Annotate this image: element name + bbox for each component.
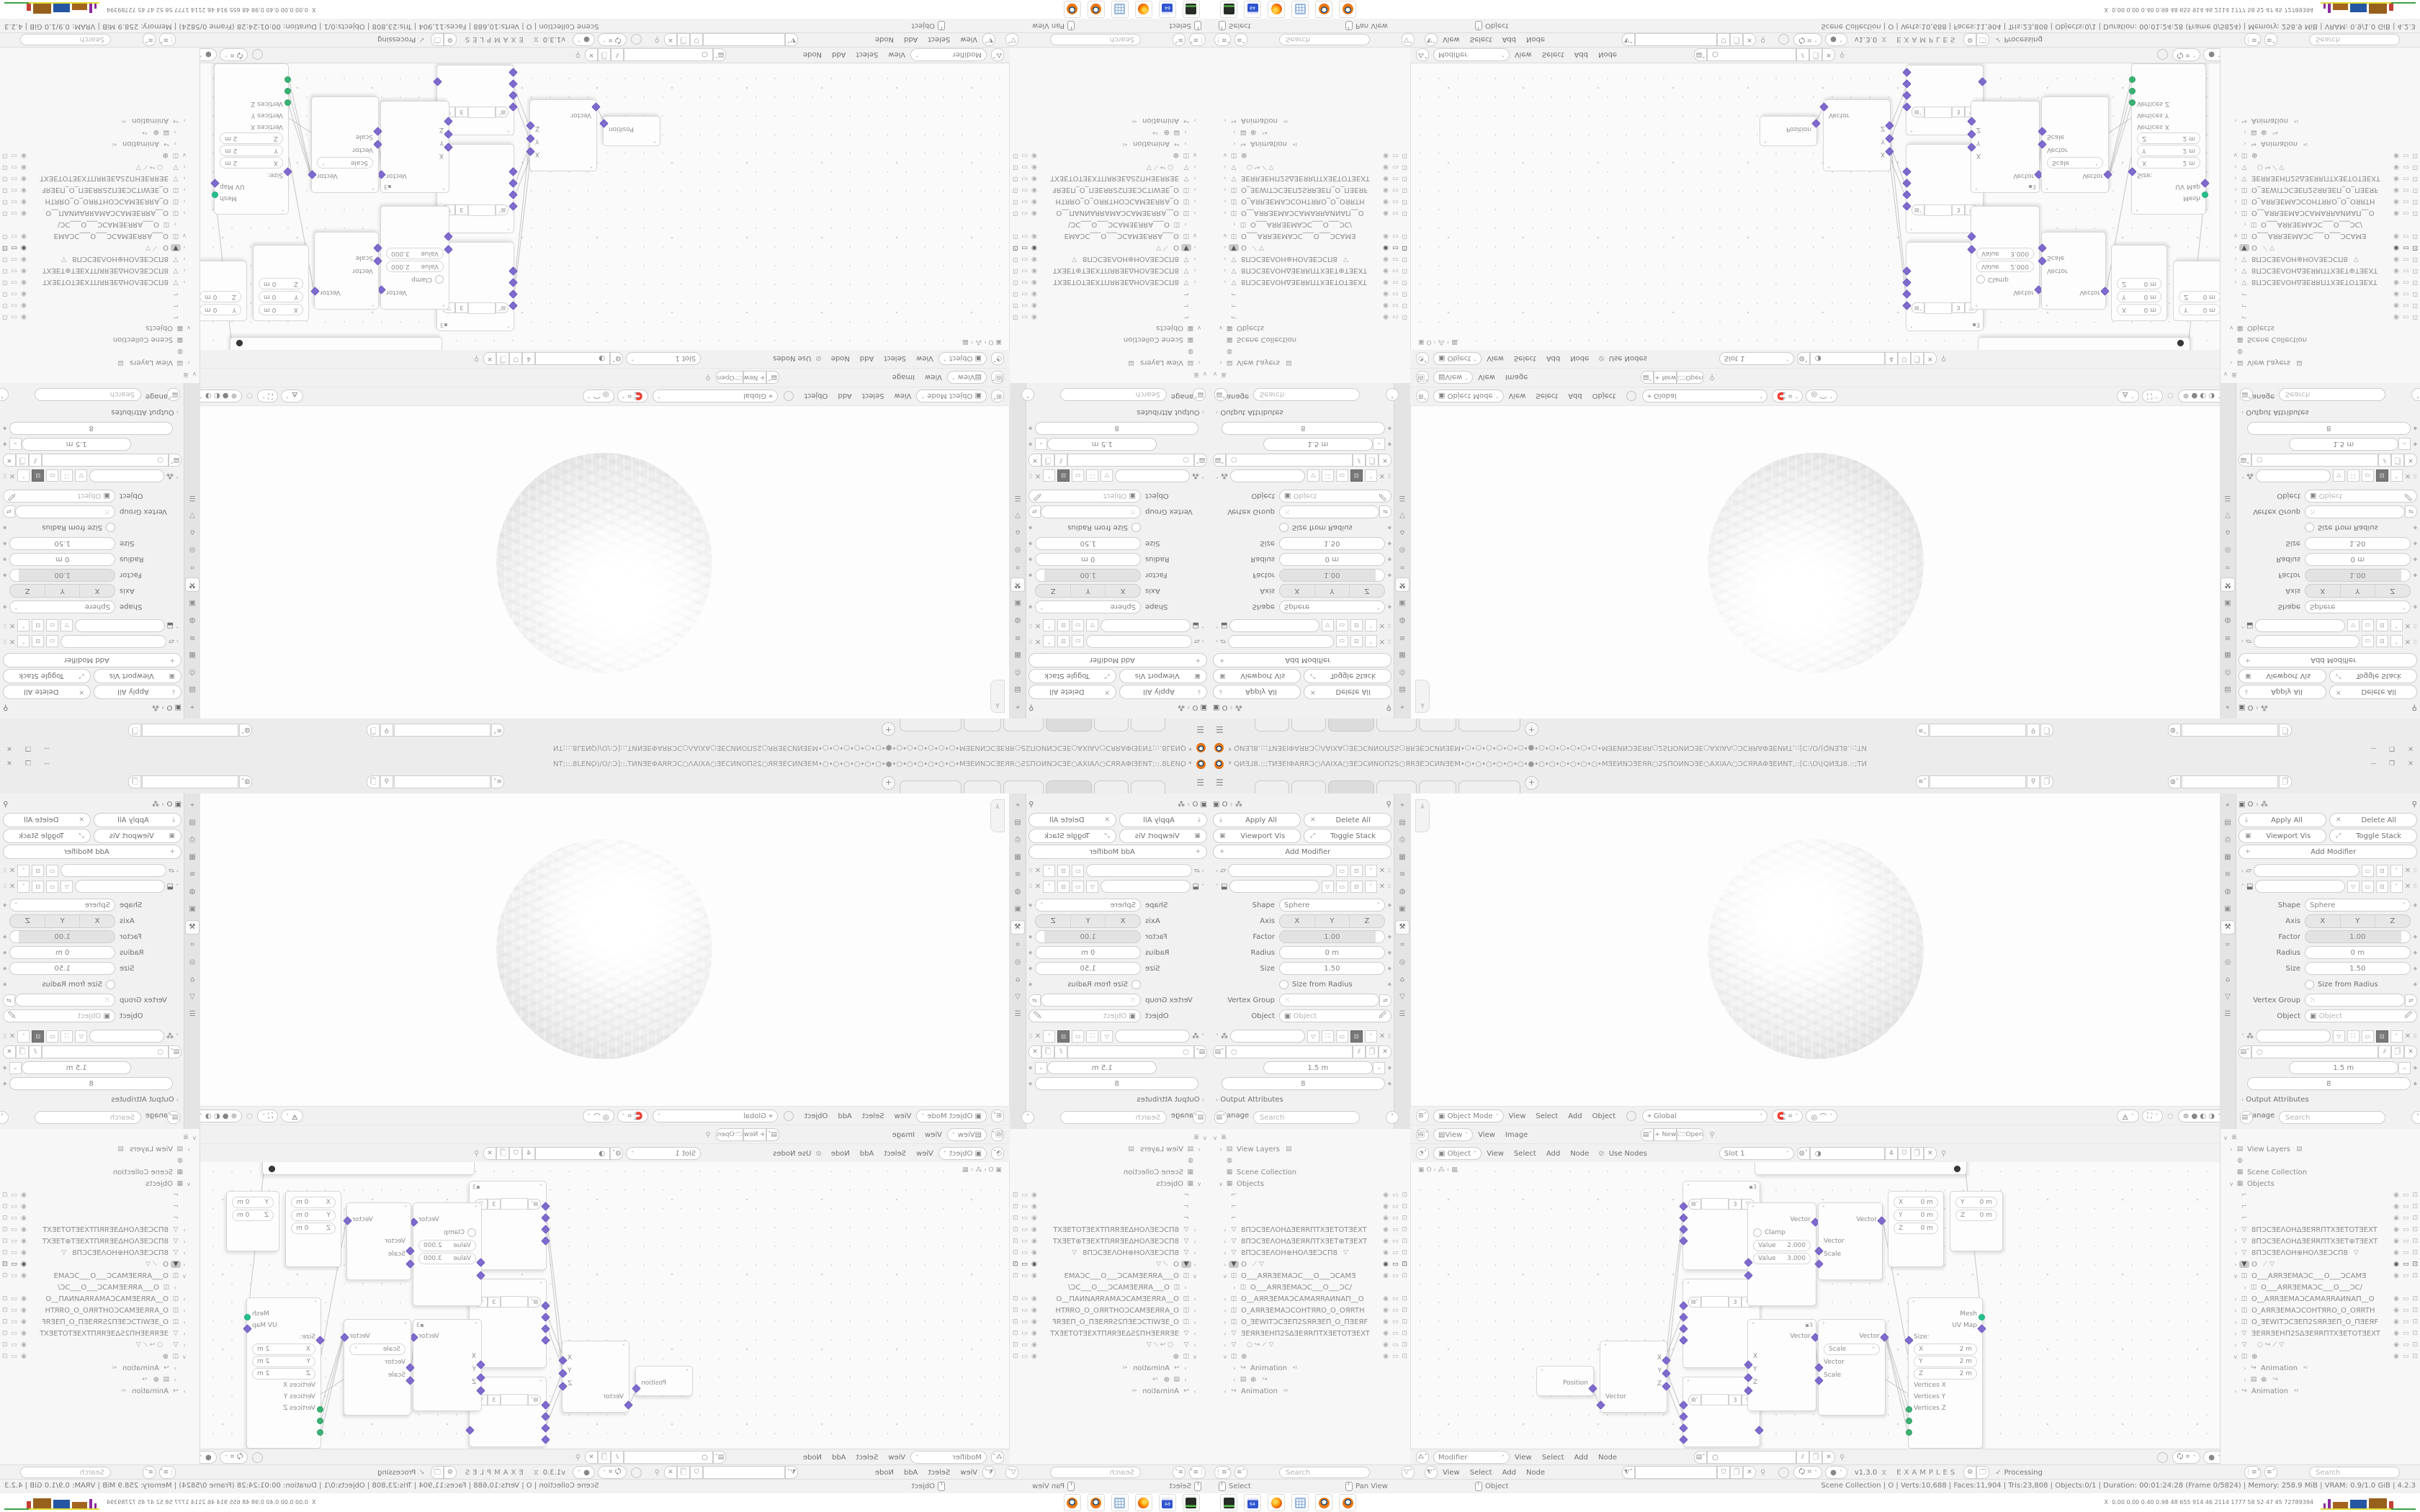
hide-eye-icon[interactable]: ◉: [1031, 1226, 1037, 1233]
outliner-row[interactable]: ⌐◉▭⊡: [1011, 1212, 1209, 1224]
count-field[interactable]: 8: [9, 1077, 173, 1090]
shield-icon[interactable]: ⛉: [690, 33, 703, 46]
properties-tab-9-icon[interactable]: ◎: [1396, 956, 1409, 969]
panel-icon[interactable]: 🗔: [1976, 33, 1989, 46]
shape-dropdown[interactable]: Sphere˅: [9, 600, 115, 613]
close-button[interactable]: ✕: [2401, 760, 2420, 768]
expand-arrow[interactable]: ›: [171, 141, 179, 148]
outliner-row[interactable]: ›◫O___AЯRƎEMAƆC___O___ƆC∕: [2222, 219, 2419, 230]
outliner-row[interactable]: ›◫O___AЯRƎEMAƆC___O___ƆC∕: [1, 219, 198, 230]
viewport-disable-icon[interactable]: ▭: [1392, 256, 1399, 263]
object-name[interactable]: O__AЯRƎEMAƆCAMAЯRAИNAП__O: [45, 1295, 169, 1303]
use-nodes-checkbox[interactable]: ⊘: [815, 355, 821, 363]
dropdown-icon[interactable]: ˅: [1043, 881, 1055, 893]
pivot-group[interactable]: ◎ ⌒˅: [583, 1110, 614, 1122]
axis-segmented-control[interactable]: XYZ: [1035, 585, 1141, 598]
hide-eye-icon[interactable]: ◉: [1383, 163, 1389, 171]
render-toggle-icon[interactable]: ⊡: [32, 881, 44, 893]
viewport-toolbar-tab[interactable]: ⅄: [1415, 799, 1430, 832]
unlink-icon[interactable]: ✕: [1743, 33, 1756, 46]
viewport-disable-icon[interactable]: ▭: [12, 186, 18, 194]
expand-arrow[interactable]: v: [1196, 1181, 1203, 1187]
remove-icon[interactable]: ✕: [9, 638, 15, 646]
render-toggle-icon[interactable]: ⊡: [32, 1030, 44, 1043]
outliner-row[interactable]: ›◫O___AЯRƎEMAƆC___O___ƆC∕: [1211, 219, 1409, 230]
snap-group[interactable]: 🧲 ⌗˅: [617, 1110, 648, 1122]
slot-dropdown[interactable]: Slot 1˅: [626, 1147, 701, 1160]
filter-icon[interactable]: ≋˅: [1234, 1466, 1247, 1479]
properties-tab-1-icon[interactable]: ▤: [1396, 816, 1409, 829]
unlink-icon[interactable]: ✕: [1028, 1045, 1041, 1058]
properties-search-input[interactable]: [1060, 1111, 1167, 1124]
properties-tab-0-icon[interactable]: ⌖: [2221, 799, 2234, 812]
outliner-search-input[interactable]: [20, 34, 111, 45]
render-disable-icon[interactable]: ⊡: [1013, 279, 1018, 286]
count-field[interactable]: 8: [1222, 422, 1385, 435]
expand-arrow[interactable]: ›: [2232, 210, 2239, 217]
edit-toggle-icon[interactable]: ▽: [1307, 1030, 1319, 1043]
object-name[interactable]: O_AЯRƎEMAƆCOHTЯRO_O_OЯRTH: [45, 1307, 169, 1315]
edit-mode-toggle-icon[interactable]: ▽: [60, 881, 73, 893]
nodetree-id-field[interactable]: ○: [42, 1045, 169, 1058]
mode-dropdown[interactable]: ▣ Object Mode˅: [1433, 1110, 1504, 1122]
viewport-toolbar-tab[interactable]: ⅄: [990, 799, 1005, 832]
menu-select[interactable]: Select: [1542, 1454, 1564, 1462]
object-name[interactable]: O__AЯRƎEMAƆCAMAЯRAИNAП__O: [1056, 210, 1179, 217]
expand-arrow[interactable]: ›: [2232, 176, 2239, 182]
viewport-disable-icon[interactable]: ▭: [2403, 313, 2409, 320]
object-name[interactable]: O_ƎEWITƆCƎEП2SЯRƎEП_O_ПƎEЯF: [2251, 1318, 2378, 1326]
new-image-button[interactable]: + New: [743, 1128, 766, 1141]
properties-tab-11-icon[interactable]: ▽: [1011, 991, 1024, 1004]
outliner-row[interactable]: ›◫O_AЯRƎEMAƆCOHTЯRO_O_OЯRTH◉▭⊡: [1211, 196, 1409, 207]
expand-arrow[interactable]: v: [1222, 1354, 1229, 1360]
expand-arrow[interactable]: ›: [2241, 222, 2249, 228]
viewport-disable-icon[interactable]: ▭: [12, 1192, 18, 1199]
monitor-toggle-icon[interactable]: ▭: [46, 620, 58, 632]
workspace-tab[interactable]: [1458, 719, 1520, 732]
apply-all-button[interactable]: ⤓Apply All: [1119, 685, 1207, 699]
hide-eye-icon[interactable]: ◉: [21, 1192, 27, 1199]
open-image-button[interactable]: 🗁 Open: [716, 1128, 743, 1141]
object-name[interactable]: View Layers: [1237, 359, 1280, 367]
outliner-row[interactable]: ›▽○ ↪ ⟋ ▽◉▭⊡: [1211, 1339, 1409, 1351]
properties-tab-2-icon[interactable]: ⎙: [186, 665, 199, 678]
object-name[interactable]: 8ПƆCƎEΛOH⊕HOΛƎEƆCП8: [2251, 256, 2348, 264]
modifier-slot-collapsed[interactable]: ›▱ ▭ ⊡ ˅ ✕ ⠿: [1210, 634, 1394, 649]
unlink-icon[interactable]: ✕: [1822, 1451, 1835, 1464]
outliner-row[interactable]: ›◫O___AЯRƎEMAƆC___O___ƆC∕: [1011, 1282, 1209, 1293]
menu-node[interactable]: Node: [1598, 1454, 1617, 1462]
object-name[interactable]: 8ПƆCƎEΛOHΔƎEЯRПTXƎET⊕TƎEXT: [1241, 267, 1367, 275]
nodetree-id-field[interactable]: [1635, 33, 1717, 46]
menu-add[interactable]: Add: [1574, 51, 1588, 59]
dropdown-icon[interactable]: ˅: [1043, 620, 1055, 632]
dropdown-icon[interactable]: ˅: [17, 636, 30, 648]
expand-arrow[interactable]: ›: [2232, 1308, 2239, 1314]
outliner-row[interactable]: ⌐◉▭⊡: [2222, 300, 2419, 311]
expand-arrow[interactable]: ›: [1222, 118, 1229, 125]
blender-icon[interactable]: [1339, 1494, 1356, 1511]
axis-segmented-control[interactable]: XYZ: [1035, 914, 1141, 928]
viewport-disable-icon[interactable]: ▭: [1392, 1318, 1399, 1326]
render-disable-icon[interactable]: ⊡: [1013, 198, 1018, 205]
window-titlebar[interactable]: * QИƎ⅃8.::;TИƎEIΦAЯRƆ○ΛAIXA○ƎEƆCИNOΠ2S○Я…: [1210, 739, 2420, 756]
viewport-disable-icon[interactable]: ▭: [1392, 186, 1399, 194]
nodes-modifier-name-field[interactable]: [89, 469, 164, 482]
menu-select[interactable]: Select: [856, 51, 878, 59]
render-disable-icon[interactable]: ⊡: [2412, 1353, 2418, 1360]
expand-arrow[interactable]: ›: [181, 1342, 188, 1349]
nodetree-type-icon[interactable]: ⧨˅: [1622, 33, 1635, 46]
outliner-row[interactable]: v◫O___AЯRƎEMAƆC___O___ƆCAMƎ◉▭⊡: [2222, 1270, 2419, 1282]
menu-node[interactable]: Node: [831, 1150, 850, 1158]
users-count[interactable]: 4: [522, 1147, 535, 1160]
map-range-node[interactable]: ˅ Vector Clamp Value2.000 Value3.000: [380, 206, 449, 310]
nodes-modifier-name-field[interactable]: [2256, 469, 2331, 482]
new-image-button[interactable]: + New: [1654, 1128, 1677, 1141]
remove-icon[interactable]: ✕: [2405, 867, 2411, 875]
options-chevron-icon[interactable]: ˅: [1386, 1111, 1399, 1124]
render-disable-icon[interactable]: ⊡: [1013, 256, 1018, 263]
render-disable-icon[interactable]: ⊡: [2, 1318, 8, 1326]
blender-icon[interactable]: [1088, 1494, 1105, 1511]
viewport-disable-icon[interactable]: ▭: [12, 1272, 18, 1279]
menu-view[interactable]: View: [1509, 392, 1526, 400]
properties-tab-11-icon[interactable]: ▽: [1011, 508, 1024, 521]
hide-eye-icon[interactable]: ◉: [1383, 1238, 1389, 1245]
monitor-toggle-icon[interactable]: ▭: [46, 1030, 58, 1043]
slot-dropdown[interactable]: Slot 1˅: [1719, 352, 1794, 365]
menu-view[interactable]: View: [916, 355, 933, 363]
properties-tab-12-icon[interactable]: ☰: [186, 1008, 199, 1021]
pin-icon[interactable]: ⚲: [1386, 801, 1391, 809]
expand-arrow[interactable]: ›: [2232, 245, 2239, 251]
outliner-row[interactable]: ›▽8ПƆCƎEΛOHΔƎEЯRПTXƎETOTƎEXT◉▭⊡: [1211, 276, 1409, 288]
menu-add[interactable]: Add: [904, 1469, 918, 1477]
users-count[interactable]: 3: [488, 1395, 501, 1405]
output-attributes-expander[interactable]: › Output Attributes: [1210, 405, 1394, 420]
object-name[interactable]: 8ПƆCƎEΛOHΔƎEЯRПTXƎETOTƎEXT: [1053, 279, 1179, 287]
viewlayer-name-field[interactable]: [2182, 724, 2278, 737]
properties-tab-9-icon[interactable]: ◎: [2221, 956, 2234, 969]
expand-arrow[interactable]: ›: [1222, 210, 1229, 217]
expand-arrow[interactable]: ›: [1231, 1365, 1238, 1372]
material-id-field[interactable]: ◑: [1810, 1147, 1885, 1160]
outliner-row[interactable]: ⌐◉▭⊡: [1211, 1189, 1409, 1201]
apply-all-button[interactable]: ⤓Apply All: [94, 685, 181, 699]
breadcrumb-object[interactable]: O: [166, 704, 172, 712]
count-field[interactable]: 8: [2247, 1077, 2411, 1090]
object-name[interactable]: ⊕: [163, 1353, 169, 1361]
hide-eye-icon[interactable]: ◉: [21, 233, 27, 240]
render-disable-icon[interactable]: ⊡: [1402, 1318, 1407, 1326]
outliner-row[interactable]: ◍: [1011, 1155, 1209, 1166]
viewport-disable-icon[interactable]: ▭: [12, 152, 18, 159]
dropdown-icon[interactable]: ˅: [1043, 636, 1055, 648]
outliner-row[interactable]: ◍: [1211, 346, 1409, 357]
render-disable-icon[interactable]: ⊡: [2412, 233, 2418, 240]
menu-view[interactable]: View: [1487, 1150, 1504, 1158]
unlink-icon[interactable]: ✕: [585, 1451, 598, 1464]
menu-image[interactable]: Image: [1505, 1131, 1528, 1139]
filter-icon[interactable]: ≋˅: [2264, 1466, 2277, 1479]
vertex-group-field[interactable]: ⁙: [2305, 994, 2405, 1007]
hide-eye-icon[interactable]: ◉: [1383, 1249, 1389, 1256]
properties-tab-6-icon[interactable]: ▣: [1396, 903, 1409, 916]
viewport-disable-icon[interactable]: ▭: [12, 279, 18, 286]
outliner-row[interactable]: ›▽8ПƆCƎEΛOH⊕HOΛƎEƆCП8▽◉▭⊡: [1011, 1247, 1209, 1259]
workspace-tab[interactable]: [964, 719, 1001, 732]
expand-arrow[interactable]: ›: [2232, 118, 2239, 125]
render-disable-icon[interactable]: ⊡: [2, 313, 8, 320]
expand-arrow[interactable]: ›: [1222, 199, 1229, 205]
pin-icon[interactable]: ⚲: [2027, 775, 2040, 788]
edit-mode-toggle-icon[interactable]: ▽: [60, 620, 73, 632]
factor-slider[interactable]: 1.00: [2305, 569, 2411, 582]
outliner-row[interactable]: ›▽○ ↪ ⟋ ▽◉▭⊡: [2222, 1339, 2419, 1351]
nodetree-id-field[interactable]: [703, 1466, 785, 1479]
expand-arrow[interactable]: v: [1191, 153, 1198, 159]
properties-tab-5-icon[interactable]: ◍: [1396, 886, 1409, 899]
firefox-icon[interactable]: [1268, 1, 1285, 18]
edit-toggle-icon[interactable]: ▽: [75, 470, 87, 482]
size-from-radius-radio[interactable]: [106, 980, 115, 989]
outliner-row[interactable]: ›▤View Layers▤: [2222, 1143, 2419, 1155]
menu-image[interactable]: Image: [892, 374, 915, 382]
outliner-row[interactable]: v▦Objects: [1011, 1178, 1209, 1189]
render-disable-icon[interactable]: ⊡: [2, 186, 8, 194]
object-name[interactable]: View Layers: [1140, 359, 1183, 367]
properties-tab-3-icon[interactable]: ▦: [2221, 851, 2234, 864]
render-disable-icon[interactable]: ⊡: [2, 1226, 8, 1233]
expand-arrow[interactable]: v: [1211, 372, 1219, 378]
workspace-tab[interactable]: [1419, 780, 1456, 793]
menu-add[interactable]: Add: [860, 355, 874, 363]
outliner-row[interactable]: ›◫O_AЯRƎEMAƆCOHTЯRO_O_OЯRTH◉▭⊡: [1211, 1305, 1409, 1316]
hide-eye-icon[interactable]: ◉: [1031, 1203, 1037, 1210]
outliner-row[interactable]: ›▤⊕↪: [1011, 127, 1209, 138]
expand-arrow[interactable]: v: [2228, 325, 2235, 332]
menu-object[interactable]: Object: [805, 1112, 828, 1120]
viewport-disable-icon[interactable]: ▭: [12, 244, 18, 251]
object-name[interactable]: ⊕: [2261, 1376, 2267, 1384]
users-count[interactable]: 3: [455, 303, 468, 314]
hide-eye-icon[interactable]: ◉: [1383, 1272, 1389, 1279]
hide-eye-icon[interactable]: ◉: [1031, 1192, 1037, 1199]
render-disable-icon[interactable]: ⊡: [1402, 1353, 1407, 1360]
modifier-name-field[interactable]: [1101, 619, 1190, 632]
render-disable-icon[interactable]: ⊡: [1402, 1192, 1407, 1199]
expand-arrow[interactable]: ›: [2232, 1342, 2239, 1349]
add-modifier-button[interactable]: +Add Modifier: [3, 653, 181, 667]
dropdown-icon[interactable]: ˅: [1365, 636, 1377, 648]
pin-icon[interactable]: ⚲: [1028, 801, 1034, 809]
render-toggle-icon[interactable]: ⊡: [1350, 881, 1363, 893]
drag-handle-icon[interactable]: ⠿: [3, 473, 7, 480]
render-disable-icon[interactable]: ⊡: [2412, 267, 2418, 274]
nodetree-icon[interactable]: ▤˅: [496, 107, 508, 118]
snap-mode-group[interactable]: 🗘 ⌗˅: [598, 33, 627, 46]
editor-type-icon[interactable]: 🖼˅: [1416, 1128, 1429, 1141]
expand-arrow[interactable]: ›: [2232, 268, 2239, 274]
viewport-disable-icon[interactable]: ▭: [2403, 152, 2409, 159]
hide-eye-icon[interactable]: ◉: [1383, 186, 1389, 194]
group-output-node-partial[interactable]: [262, 1162, 475, 1175]
fake-user-icon[interactable]: ⫽: [29, 454, 42, 467]
pin-icon[interactable]: ⚲: [1760, 1469, 1765, 1477]
monitor-toggle-icon[interactable]: ▭: [2362, 636, 2374, 648]
outliner-row[interactable]: ›◫O___AЯRƎEMAƆC___O___ƆC∕: [1, 1282, 198, 1293]
hide-eye-icon[interactable]: ◉: [1031, 1261, 1037, 1268]
hide-eye-icon[interactable]: ◉: [2393, 1192, 2399, 1199]
viewport-disable-icon[interactable]: ▭: [2403, 1330, 2409, 1337]
viewport-disable-icon[interactable]: ▭: [1022, 1307, 1028, 1314]
expand-arrow[interactable]: ›: [1217, 1146, 1224, 1153]
outliner-row[interactable]: v≣: [1011, 369, 1209, 380]
render-disable-icon[interactable]: ⊡: [2, 290, 8, 297]
pin-icon[interactable]: ⚲: [474, 355, 479, 363]
object-name[interactable]: Objects: [1156, 325, 1183, 333]
edit-toggle-icon[interactable]: ▽: [2333, 1030, 2345, 1043]
edit-toggle-icon[interactable]: ▽: [75, 1030, 87, 1043]
outliner-row[interactable]: ›▽8ПƆCƎEΛOHΔƎEЯRПTXƎETOTƎEXT◉▭⊡: [1011, 1224, 1209, 1236]
viewport-disable-icon[interactable]: ▭: [1392, 1295, 1399, 1302]
snapping-toggle-icon[interactable]: [252, 1452, 263, 1463]
editor-type-icon[interactable]: ⁂˅: [1416, 1451, 1429, 1464]
workspace-tab[interactable]: [1094, 780, 1129, 793]
shader-mode-dropdown[interactable]: ▣ Object˅: [1433, 1147, 1482, 1160]
dropdown-icon[interactable]: ˅: [17, 470, 30, 482]
unlink-icon[interactable]: ✕: [1379, 454, 1391, 467]
expand-arrow[interactable]: ›: [1191, 164, 1198, 171]
outliner-row[interactable]: v▦Objects: [1211, 1178, 1409, 1189]
modifier-slot-collapsed[interactable]: ›▱ ▭ ⊡ ˅ ✕ ⠿: [1026, 634, 1210, 649]
viewport-disable-icon[interactable]: ▭: [12, 302, 18, 309]
nodetree-icon[interactable]: ▤˅: [528, 1199, 541, 1210]
object-name[interactable]: Animation: [1133, 140, 1170, 148]
viewport-disable-icon[interactable]: ▭: [12, 175, 18, 182]
expand-arrow[interactable]: ›: [171, 130, 179, 136]
render-toggle-icon[interactable]: ⊡: [1057, 636, 1070, 648]
expand-arrow[interactable]: v: [2232, 1354, 2239, 1360]
drag-handle-icon[interactable]: ⠿: [1387, 883, 1391, 890]
nodes-modifier-header[interactable]: ˅⁂ ▽ ⛶ ▭ ⊡ ˅ ✕ ⠿: [1210, 468, 1394, 484]
render-disable-icon[interactable]: ⊡: [1013, 1353, 1018, 1360]
new-viewlayer-icon[interactable]: 🗍: [2279, 775, 2292, 788]
viewport-disable-icon[interactable]: ▭: [1392, 233, 1399, 240]
render-toggle-icon[interactable]: ⊡: [1350, 620, 1363, 632]
properties-tab-4-icon[interactable]: ≋: [1396, 631, 1409, 644]
display-mode-icon[interactable]: ⋮≡˅: [1189, 1466, 1206, 1479]
firefox-icon[interactable]: [1135, 1, 1152, 18]
drag-handle-icon[interactable]: ⠿: [1028, 868, 1033, 874]
properties-tab-7-icon[interactable]: ⚒: [1010, 577, 1025, 592]
dropdown-icon[interactable]: ˅: [17, 1030, 30, 1043]
outliner-row[interactable]: ›◫O__AЯRƎEMAƆCAMAЯRAИNAП__O◉▭⊡: [1, 1293, 198, 1305]
outliner-row[interactable]: ⌐◉▭⊡: [1, 1201, 198, 1212]
hide-eye-icon[interactable]: ◉: [2393, 1330, 2399, 1337]
menu-object[interactable]: Object: [805, 392, 828, 400]
outliner-row[interactable]: ◍: [1, 346, 198, 357]
properties-tab-12-icon[interactable]: ☰: [2221, 1008, 2234, 1021]
apply-all-button[interactable]: ⤓Apply All: [1213, 685, 1301, 699]
workspace-tab[interactable]: [900, 719, 962, 732]
shading-mode-group[interactable]: ⊕ ● ◐ ◑˅: [194, 1110, 242, 1122]
viewport-disable-icon[interactable]: ▭: [12, 1261, 18, 1268]
snapping-toggle-icon[interactable]: [252, 50, 263, 60]
render-disable-icon[interactable]: ⊡: [1402, 279, 1407, 286]
new-image-button[interactable]: + New: [1654, 371, 1677, 384]
workspace-tab[interactable]: [1255, 780, 1289, 793]
add-workspace-button[interactable]: +: [1525, 776, 1538, 790]
menu-select[interactable]: Select: [884, 355, 906, 363]
properties-search-input[interactable]: [2279, 388, 2385, 401]
menu-select[interactable]: Select: [1470, 36, 1492, 44]
disk-utility-icon[interactable]: [1220, 1494, 1237, 1511]
axis-gizmo-icon[interactable]: ⟓: [1035, 1062, 1047, 1074]
object-name[interactable]: O_AЯRƎEMAƆCOHTЯRO_O_OЯRTH: [2251, 198, 2375, 206]
outliner-row[interactable]: v◫⊕◉▭⊡: [1211, 1351, 1409, 1362]
menu-node[interactable]: Node: [1526, 36, 1545, 44]
workspace-tab[interactable]: [1046, 719, 1092, 732]
spacing-field[interactable]: 1.5 m: [1263, 1061, 1373, 1074]
invert-vgroup-icon[interactable]: ⇄: [2405, 994, 2417, 1007]
menu-select[interactable]: Select: [1536, 1112, 1558, 1120]
menu-image[interactable]: Image: [892, 1131, 915, 1139]
object-name[interactable]: O_AЯRƎEMAƆCOHTЯRO_O_OЯRTH: [1055, 1307, 1179, 1315]
viewport-disable-icon[interactable]: ▭: [12, 1238, 18, 1245]
properties-tab-8-icon[interactable]: ⌗: [1011, 560, 1024, 573]
users-count[interactable]: 3: [1952, 205, 1965, 216]
properties-tab-3-icon[interactable]: ▦: [1011, 851, 1024, 864]
nodetree-icon[interactable]: ▤˅: [1688, 1199, 1701, 1210]
outliner-search-input[interactable]: [1050, 34, 1141, 45]
hide-eye-icon[interactable]: ◉: [21, 1318, 27, 1326]
calculator-icon[interactable]: [1291, 1, 1309, 18]
object-name[interactable]: O: [2251, 1261, 2257, 1269]
viewport-disable-icon[interactable]: ▭: [1392, 290, 1399, 297]
nodes-modifier-name-field[interactable]: [89, 1030, 164, 1043]
copy-icon[interactable]: 🗍: [1730, 33, 1743, 46]
menu-add[interactable]: Add: [904, 36, 918, 44]
object-name[interactable]: 8ПƆCƎEΛOHΔƎEЯRПTXƎET⊕TƎEXT: [1053, 1238, 1179, 1246]
hide-eye-icon[interactable]: ◉: [2393, 244, 2399, 251]
outliner-row[interactable]: ›▽ƎEЯRƎEHП2SΔƎEЯRПTXƎETOTƎEXT◉▭⊡: [1, 173, 198, 184]
vector-math-node[interactable]: ˅ Vector Vector Scale: [1818, 1202, 1883, 1280]
fake-user-icon[interactable]: ⫽: [1353, 1045, 1366, 1058]
render-disable-icon[interactable]: ⊡: [2, 233, 8, 240]
delete-all-button[interactable]: ✕Delete All: [1028, 685, 1116, 699]
modifier-name-field[interactable]: [1228, 864, 1334, 877]
fake-user-icon[interactable]: ⫽: [1054, 1045, 1067, 1058]
object-name[interactable]: Animation: [1250, 140, 1287, 148]
expand-arrow[interactable]: ›: [1182, 130, 1189, 136]
object-name[interactable]: O___AЯRƎEMAƆC___O___ƆC∕: [58, 1284, 159, 1292]
outliner-row[interactable]: v▦Objects: [2222, 323, 2419, 334]
object-name[interactable]: O: [163, 1261, 169, 1269]
node-mode-dropdown[interactable]: Modifier˅: [910, 1451, 987, 1464]
disk-utility-icon[interactable]: [1183, 1494, 1200, 1511]
outliner-row[interactable]: ›◫O_ƎEWITƆCƎEП2SЯRƎEП_O_ПƎEЯF◉▭⊡: [1211, 184, 1409, 196]
viewport-disable-icon[interactable]: ▭: [1392, 302, 1399, 309]
monitor-toggle-icon[interactable]: ▭: [1072, 1030, 1084, 1043]
material-type-icon[interactable]: ◍˅: [1797, 1147, 1810, 1160]
render-disable-icon[interactable]: ⊡: [1013, 152, 1018, 159]
hide-eye-icon[interactable]: ◉: [1383, 198, 1389, 205]
outliner-row[interactable]: ›▽ƎEЯRƎEHП2SΔƎEЯRПTXƎETOTƎEXT◉▭⊡: [1, 1328, 198, 1339]
object-name[interactable]: O__AЯRƎEMAƆCAMAЯRAИNAП__O: [1056, 1295, 1179, 1303]
